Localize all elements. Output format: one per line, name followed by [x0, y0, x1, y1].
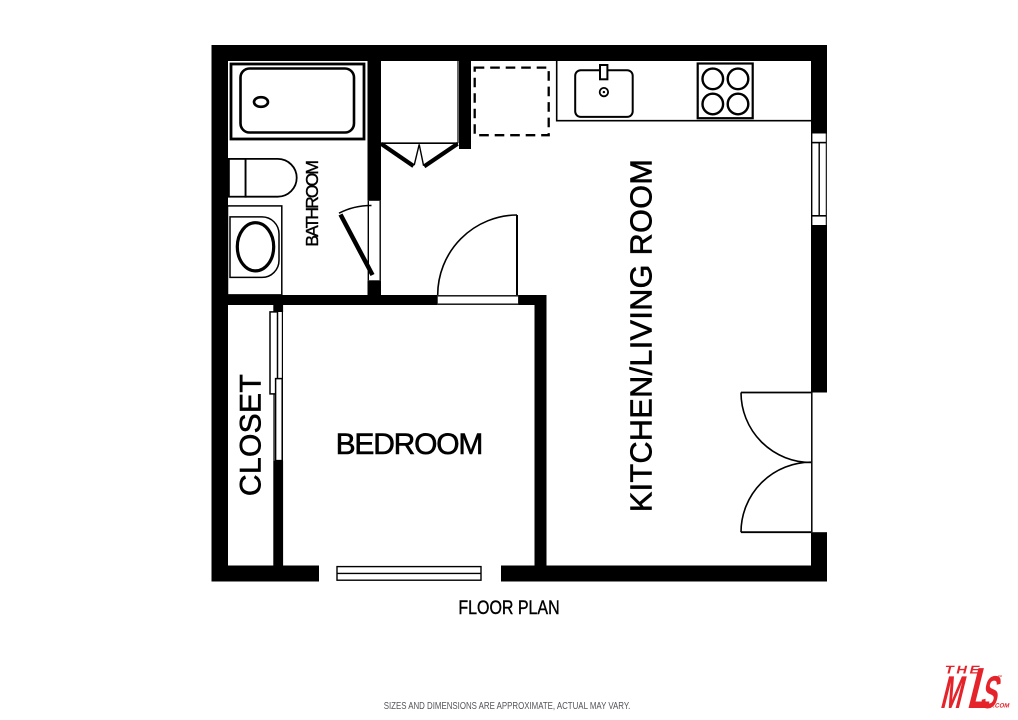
svg-text:KITCHEN/LIVING ROOM: KITCHEN/LIVING ROOM	[624, 159, 658, 512]
svg-text:SIZES AND DIMENSIONS ARE APPRO: SIZES AND DIMENSIONS ARE APPROXIMATE, AC…	[384, 700, 631, 711]
svg-text:BATHROOM: BATHROOM	[302, 161, 322, 247]
svg-text:BEDROOM: BEDROOM	[336, 428, 483, 461]
svg-text:FLOOR PLAN: FLOOR PLAN	[458, 597, 559, 619]
svg-text:.COM: .COM	[992, 703, 1010, 710]
svg-text:CLOSET: CLOSET	[235, 374, 268, 496]
